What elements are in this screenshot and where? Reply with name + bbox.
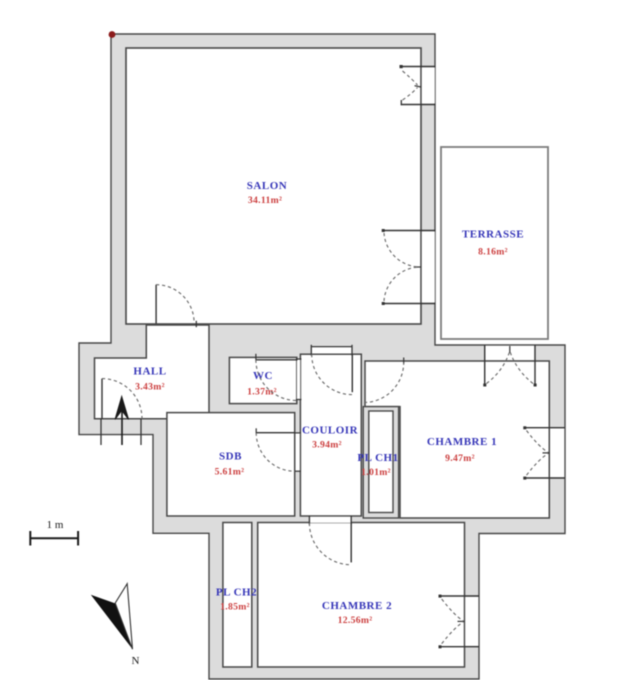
svg-text:5.61m²: 5.61m² [215,467,245,478]
svg-text:TERRASSE: TERRASSE [462,229,524,241]
svg-text:8.16m²: 8.16m² [478,247,508,258]
svg-text:WC: WC [253,370,273,382]
svg-text:SDB: SDB [219,451,242,463]
svg-text:CHAMBRE 2: CHAMBRE 2 [322,600,392,612]
svg-text:3.94m²: 3.94m² [312,440,342,451]
svg-text:1.01m²: 1.01m² [361,467,391,478]
svg-text:34.11m²: 34.11m² [248,195,282,206]
svg-text:1.85m²: 1.85m² [220,602,250,613]
svg-text:PL CH1: PL CH1 [357,452,398,464]
svg-text:SALON: SALON [247,180,287,192]
svg-text:12.56m²: 12.56m² [338,615,373,626]
svg-text:9.47m²: 9.47m² [445,453,475,464]
svg-text:3.43m²: 3.43m² [135,382,165,393]
svg-text:CHAMBRE 1: CHAMBRE 1 [427,436,497,448]
svg-text:PL CH2: PL CH2 [216,587,257,599]
svg-text:HALL: HALL [133,366,166,378]
svg-text:1 m: 1 m [47,519,64,531]
svg-text:N: N [132,655,140,667]
svg-text:COULOIR: COULOIR [302,425,359,437]
